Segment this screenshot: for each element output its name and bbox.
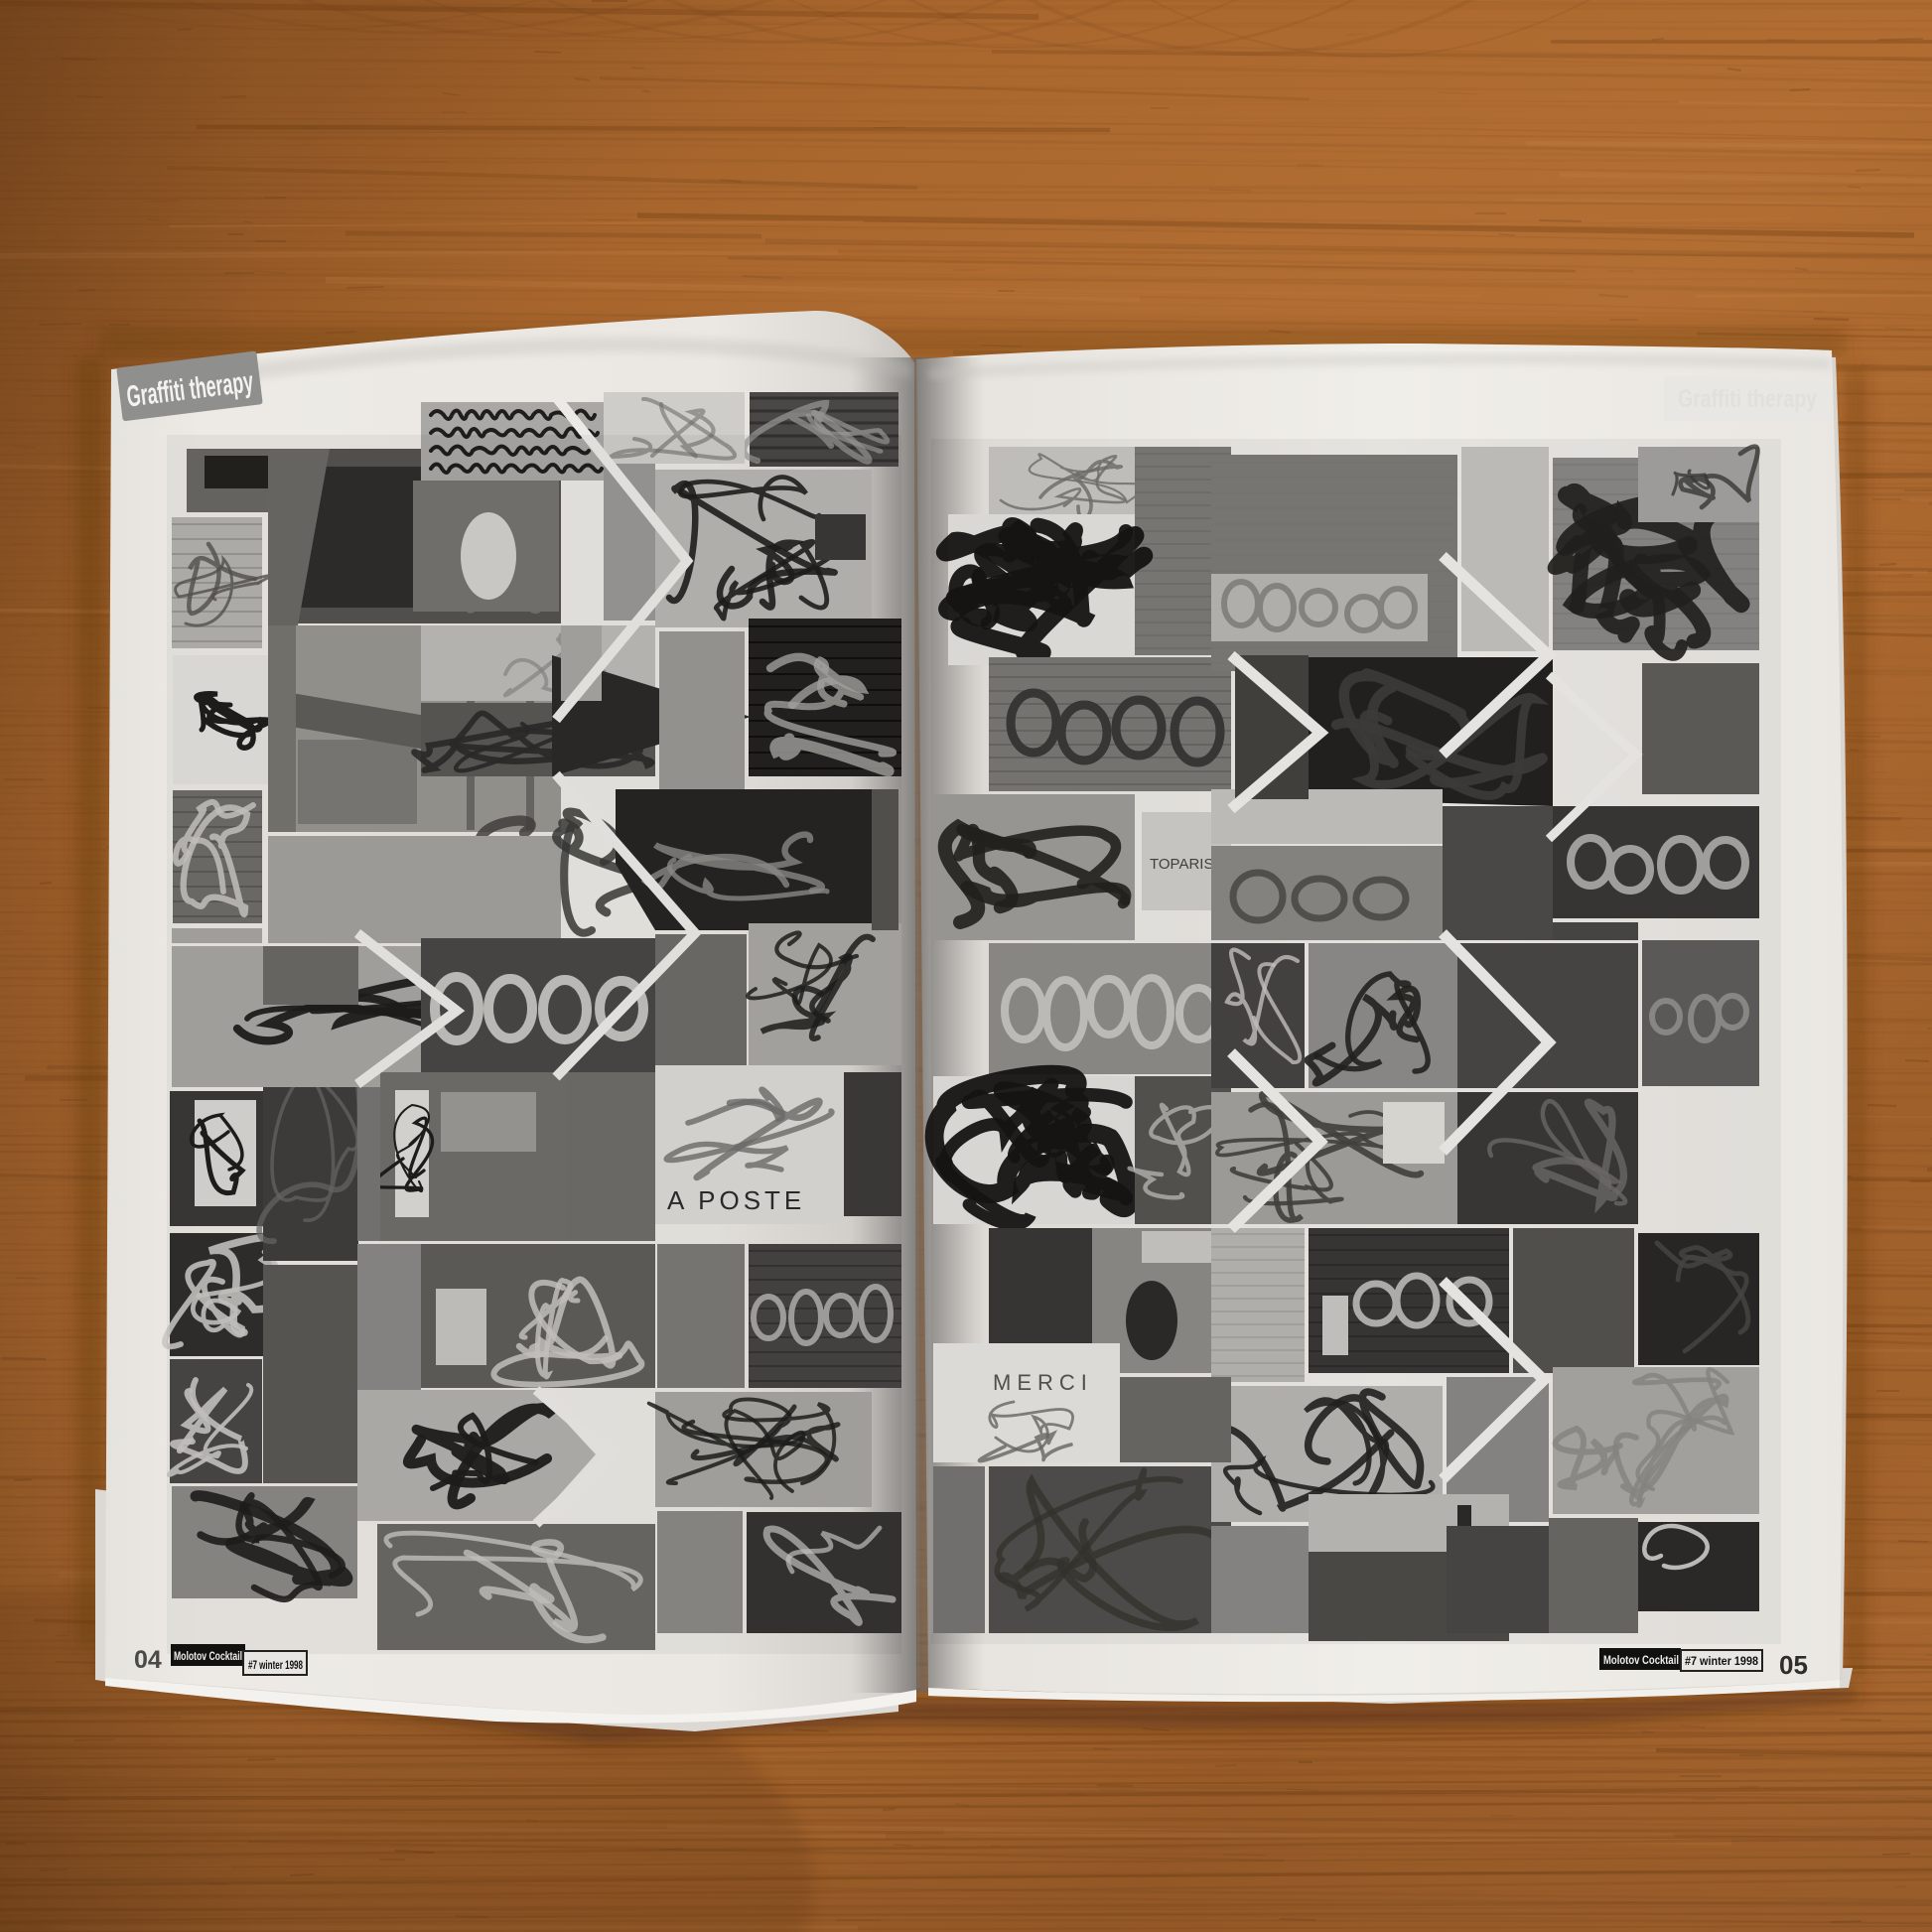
svg-text:Molotov Cocktail: Molotov Cocktail — [174, 1649, 242, 1663]
svg-text:05: 05 — [1779, 1650, 1808, 1680]
svg-text:Graffiti therapy: Graffiti therapy — [1678, 385, 1817, 413]
svg-text:04: 04 — [134, 1646, 162, 1674]
svg-text:Molotov Cocktail: Molotov Cocktail — [1603, 1653, 1679, 1667]
svg-text:#7 winter 1998: #7 winter 1998 — [1685, 1654, 1758, 1668]
svg-text:#7 winter 1998: #7 winter 1998 — [248, 1658, 303, 1672]
